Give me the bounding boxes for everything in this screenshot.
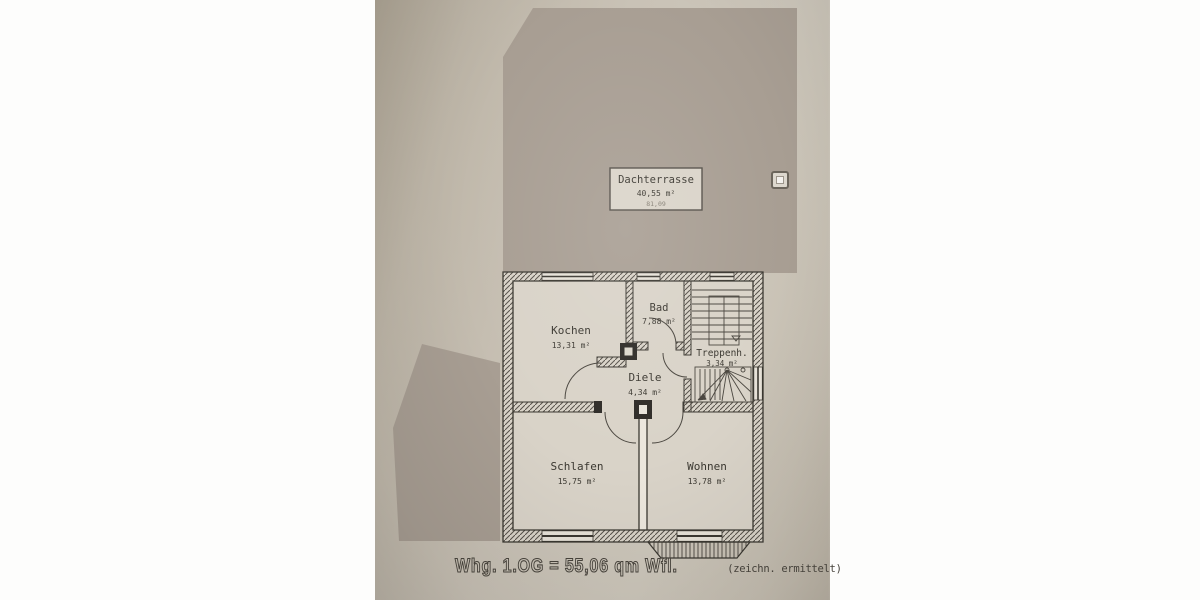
room-label-diele: Diele — [628, 371, 661, 384]
room-label-treppenhaus: Treppenh. — [696, 348, 747, 359]
jamb-diele-s-core — [639, 405, 647, 414]
terrace-label: Dachterrasse 40,55 m² 81,09 — [610, 168, 702, 210]
room-area-schlafen: 15,75 m² — [558, 477, 597, 486]
plan-caption: Whg. 1.OG = 55,06 qm Wfl. (zeichn. ermit… — [455, 557, 842, 576]
wall-wohnen-top — [683, 402, 753, 412]
paper-edge-fade — [828, 0, 862, 600]
wall-schlafen-wohnen — [639, 418, 647, 530]
wall-treppenhaus-upper — [684, 281, 691, 355]
roof-drain-icon — [772, 172, 788, 188]
roof-terrace-area — [503, 8, 797, 273]
window-treppenhaus-right — [754, 367, 763, 400]
room-label-schlafen: Schlafen — [551, 460, 604, 473]
window-bad — [637, 273, 660, 281]
floorplan-drawing: Dachterrasse 40,55 m² 81,09 — [0, 0, 1200, 600]
side-building-area — [393, 344, 500, 541]
room-area-treppenhaus: 3,34 m² — [706, 359, 738, 368]
room-label-kochen: Kochen — [551, 324, 591, 337]
room-area-wohnen: 13,78 m² — [688, 477, 727, 486]
room-area-bad: 7,88 m² — [642, 317, 676, 326]
room-area-diele: 4,34 m² — [628, 388, 662, 397]
floorplan-photo: Dachterrasse 40,55 m² 81,09 — [0, 0, 1200, 600]
caption-note: (zeichn. ermittelt) — [727, 563, 841, 575]
window-treppenhaus-top — [710, 273, 734, 281]
terrace-gross-area: 81,09 — [646, 200, 666, 208]
caption-title: Whg. 1.OG = 55,06 qm Wfl. — [455, 557, 678, 576]
room-label-wohnen: Wohnen — [687, 460, 727, 473]
terrace-area: 40,55 m² — [637, 189, 676, 198]
wall-bad-bottom-right — [676, 342, 684, 350]
wall-schlafen-top — [513, 402, 596, 412]
window-kochen — [542, 273, 593, 281]
jamb-schlafen-door — [594, 401, 602, 413]
terrace-name: Dachterrasse — [618, 174, 694, 186]
window-wohnen — [677, 531, 722, 542]
wall-kochen-bad — [626, 281, 633, 343]
window-schlafen — [542, 531, 593, 542]
room-label-bad: Bad — [650, 302, 669, 314]
room-area-kochen: 13,31 m² — [552, 341, 591, 350]
jamb-diele-nw-core — [625, 348, 633, 356]
